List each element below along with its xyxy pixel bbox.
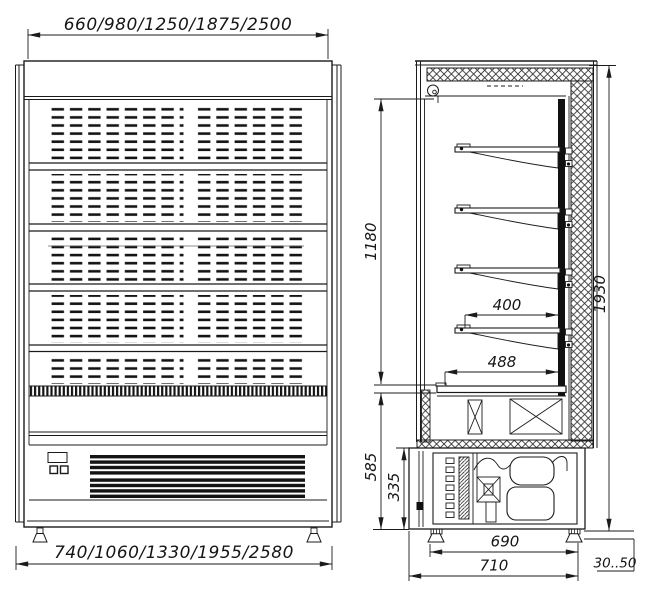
back-wall-insulation [569, 61, 597, 448]
left-side-panel [16, 65, 25, 522]
adjustable-foot [33, 528, 47, 542]
dim-bottom-width: 740/1060/1330/1955/2580 [16, 543, 332, 570]
adjustable-foot [566, 529, 582, 542]
evaporator-box [468, 400, 482, 434]
front-sill-insulation [422, 390, 431, 442]
shelf-2 [455, 205, 572, 229]
machine-height-label: 335 [385, 473, 403, 502]
shelf-rail [558, 99, 565, 396]
dim-deck-depth: 488 [445, 353, 558, 385]
side-view [409, 61, 634, 571]
shelf-3 [455, 265, 572, 289]
leg-adjustment-label: 30..50 [594, 556, 637, 572]
adjustable-foot [307, 528, 321, 542]
overall-depth-label: 710 [480, 557, 509, 575]
panel-seam [184, 106, 197, 384]
display-case-drawing: 660/980/1250/1875/2500 [0, 0, 648, 595]
shelf-1 [455, 144, 572, 168]
top-insulation [427, 68, 593, 81]
adjustable-foot [428, 529, 444, 542]
deck-depth-label: 488 [488, 353, 517, 371]
base-section-height-label: 585 [362, 453, 380, 482]
condenser [446, 457, 469, 519]
right-side-panel [332, 65, 341, 522]
perforated-back-panel [48, 106, 304, 384]
side-dimensions: 1180 585 335 400 488 1930 [362, 66, 636, 582]
machine-compartment [409, 448, 585, 529]
cabinet-front [16, 61, 342, 542]
bottom-width-label: 740/1060/1330/1955/2580 [54, 543, 294, 563]
floor-insulation [417, 440, 593, 448]
lamp [428, 85, 439, 96]
base-width-label: 690 [491, 533, 520, 551]
shelf-4 [455, 325, 572, 349]
bottom-deck [436, 383, 566, 396]
technical-drawing: 660/980/1250/1875/2500 [0, 0, 648, 595]
air-grille-strip [29, 386, 327, 396]
hinge [417, 502, 424, 510]
overall-height-label: 1930 [591, 275, 609, 313]
dim-top-width: 660/980/1250/1875/2500 [28, 15, 328, 59]
dim-shelf-depth: 400 [465, 296, 558, 328]
inner-height-label: 1180 [362, 222, 380, 260]
fan-box [510, 399, 562, 434]
front-view: 660/980/1250/1875/2500 [16, 15, 342, 570]
shelf-depth-label: 400 [493, 296, 522, 314]
top-width-label: 660/980/1250/1875/2500 [64, 15, 293, 35]
